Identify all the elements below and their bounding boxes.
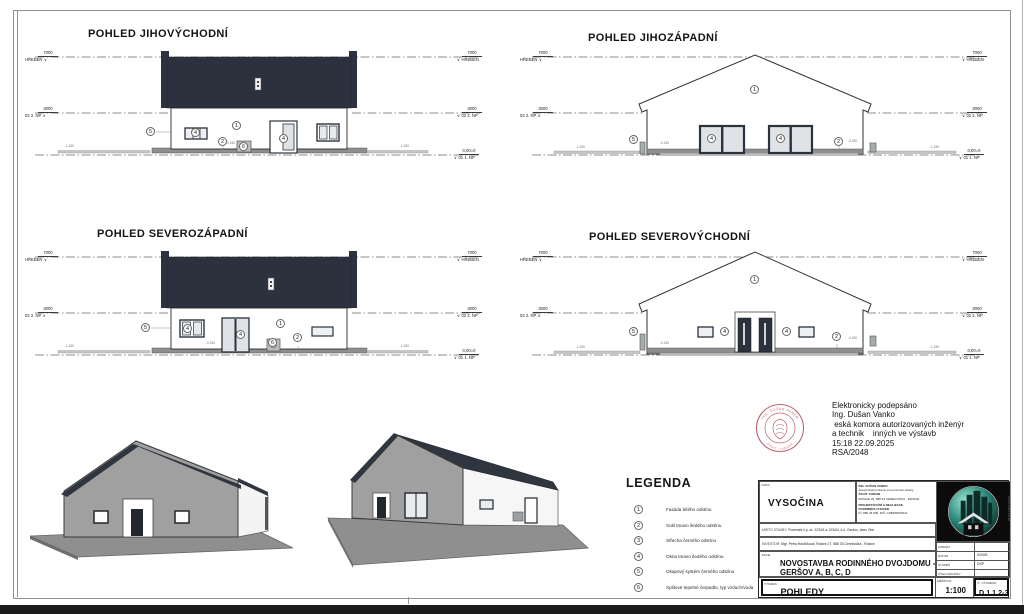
titleblock-project-cell: AKCE: NOVOSTAVBA RODINNÉHO DVOJDOMU - GE… xyxy=(759,551,936,578)
downspout xyxy=(265,497,268,530)
titleblock-site-cell: MÍSTO STAVBY: Pozemek č.p. st. 1234/1 a … xyxy=(759,523,936,538)
titleblock-drawing-cell: VÝKRES: POHLEDY xyxy=(759,577,936,597)
level-marker-floor2-left: 300002 2. NP∨ xyxy=(519,306,561,319)
annotation-circle: 6 xyxy=(268,338,277,347)
legend-item-number: 3 xyxy=(634,536,643,545)
gutter-drain xyxy=(870,336,876,346)
window-small-left xyxy=(698,327,713,337)
roof-vent xyxy=(268,278,274,290)
gutter-drain xyxy=(870,143,876,152)
elevation-view-southwest: POHLED JIHOZÁPADNÍ 7000HŘEBEN∨ 300002 2.… xyxy=(512,24,1012,184)
annotation-circle: 4 xyxy=(183,324,192,333)
level-marker-ridge-left: 7000HŘEBEN∨ xyxy=(519,250,561,263)
legend-item-number: 4 xyxy=(634,552,643,561)
view-title: POHLED SEVEROVÝCHODNÍ xyxy=(589,231,750,243)
meta-label-cell: DATUM xyxy=(937,552,975,561)
ground-tag: -1,150 xyxy=(65,144,74,148)
side-window xyxy=(480,500,493,509)
meta-label-cell: STUPEŇ xyxy=(937,561,975,570)
titleblock-engineer-cell: ING. DUŠAN VANKO Autorizovaný inženýr pr… xyxy=(856,481,937,523)
view-title: POHLED JIHOVÝCHODNÍ xyxy=(88,28,228,40)
window-wide xyxy=(312,327,333,336)
sheet-border-inner-left xyxy=(17,10,18,597)
window xyxy=(175,511,189,523)
annotation-circle: 4 xyxy=(236,330,245,339)
kraj-value: VYSOČINA xyxy=(768,498,824,509)
annotation-circle: 4 xyxy=(191,128,200,137)
window xyxy=(94,511,108,523)
ground-tag: -0,150 xyxy=(848,139,857,143)
roof xyxy=(161,51,357,108)
project-label: AKCE: xyxy=(762,553,771,557)
door xyxy=(131,509,143,536)
level-marker-floor2-left: 300002 2. NP∨ xyxy=(24,306,66,319)
annotation-circle: 4 xyxy=(776,134,785,143)
gable-door xyxy=(373,493,390,518)
annotation-circle: 4 xyxy=(707,134,716,143)
ground-tag: -1,150 xyxy=(400,144,409,148)
ground-tag: -0,150 xyxy=(660,141,669,145)
ground-tag: -1,150 xyxy=(400,344,409,348)
site-label: MÍSTO STAVBY: xyxy=(762,528,787,532)
legend-item-number: 2 xyxy=(634,521,643,530)
titleblock-investor-cell: INVESTOR: Mgr. Petra Havlíčková, Rosice … xyxy=(759,537,936,552)
annotation-circle: 4 xyxy=(782,327,791,336)
level-marker-floor2-right: 3000∨02 2. NP xyxy=(960,306,1002,319)
drawing-number: D.1.1.2-3 xyxy=(979,588,1009,597)
ground-tag: -0,150 xyxy=(848,336,857,340)
door-recess xyxy=(123,499,153,537)
annotation-circle: 2 xyxy=(832,332,841,341)
level-marker-floor2-right: 3000∨02 2. NP xyxy=(960,106,1002,119)
window-double xyxy=(317,124,339,141)
kraj-label: KRAJ: xyxy=(762,483,771,487)
drawing-label: VÝKRES: xyxy=(764,582,777,586)
electronic-signature: ING. DUŠAN VANKO ČKAIT - 1400339 Elektro… xyxy=(750,396,1014,472)
project-title: NOVOSTAVBA RODINNÉHO DVOJDOMU - GERŠOV A… xyxy=(780,559,935,578)
annotation-circle: 1 xyxy=(750,275,759,284)
meta-value-cell: DSP xyxy=(975,561,1011,570)
annotation-circle: 2 xyxy=(293,333,302,342)
downspout xyxy=(640,334,645,350)
walkway xyxy=(660,153,858,156)
walkway xyxy=(660,353,858,356)
legend-item-text: Sokl tmavo šedého odstínu xyxy=(666,523,721,528)
roof-vent xyxy=(255,78,261,90)
titleblock-number-cell: Č. VÝKRESU: D.1.1.2-3 xyxy=(974,577,1011,597)
elevation-view-northeast: POHLED SEVEROVÝCHODNÍ 7000HŘEBEN∨ 300002… xyxy=(512,224,1012,384)
level-marker-ridge-left: 7000HŘEBEN∨ xyxy=(24,50,66,63)
meta-label-cell: FORMÁT xyxy=(937,543,975,552)
legend-item-text: Okna tmavo šedého odstínu xyxy=(666,554,723,559)
scale-label: MĚŘÍTKO: xyxy=(937,579,952,583)
legend-item-text: Fasáda bílého odstínu xyxy=(666,507,711,512)
level-marker-floor2-right: 3000∨02 2. NP xyxy=(455,306,497,319)
scale-value: 1:100 xyxy=(946,586,966,595)
drawing-name: POHLEDY xyxy=(781,587,825,597)
legend-title: LEGENDA xyxy=(626,476,691,490)
annotation-circle: 6 xyxy=(239,142,248,151)
level-marker-ground-right: 0,00=0∨01 1. NP xyxy=(452,148,494,161)
stamp-emblem xyxy=(773,419,787,439)
annotation-circle: 1 xyxy=(276,319,285,328)
authorization-stamp: ING. DUŠAN VANKO ČKAIT - 1400339 xyxy=(754,402,806,454)
side-door xyxy=(525,498,537,523)
elevation-drawing-southwest xyxy=(512,24,1012,184)
level-marker-ridge-right: 7000∨HŘEBEN xyxy=(455,50,497,63)
signature-line: Ing. Dušan Vanko xyxy=(832,410,964,419)
annotation-circle: 1 xyxy=(750,85,759,94)
roof xyxy=(161,251,357,308)
ground-tag: -0,150 xyxy=(206,341,215,345)
legend-item-text: Střecha černého odstínu xyxy=(666,538,716,543)
elevation-view-southeast: POHLED JIHOVÝCHODNÍ 7000HŘEBEN∨ 300002 2… xyxy=(20,24,508,184)
entry-recess xyxy=(735,312,775,352)
annotation-circle: 4 xyxy=(720,327,729,336)
title-block: KRAJ: VYSOČINA ING. DUŠAN VANKO Autorizo… xyxy=(758,480,1009,598)
drawing-number-label: Č. VÝKRESU: xyxy=(978,581,998,585)
titleblock-meta-table: FORMÁT DATUM 9/2025 STUPEŇ DSP ČÍSLO ZAK… xyxy=(936,542,1011,578)
legend-item-number: 5 xyxy=(634,567,643,576)
signature-line: 15:18 22.09.2025 xyxy=(832,439,964,448)
level-marker-ridge-right: 7000∨HŘEBEN xyxy=(455,250,497,263)
site-value: Pozemek č.p. st. 1234/1 a 1234/4, k.ú. G… xyxy=(788,528,874,532)
ground-tag: -0,150 xyxy=(660,341,669,345)
elevation-drawing-northwest xyxy=(20,224,508,384)
annotation-circle: 5 xyxy=(629,327,638,336)
legend-item-text: Splitové tepelné čerpadlo, typ vzduch/vo… xyxy=(666,585,753,590)
annotation-circle: 4 xyxy=(279,134,288,143)
page-bottom-edge xyxy=(0,605,1024,614)
drawing-sheet: POHLED JIHOVÝCHODNÍ 7000HŘEBEN∨ 300002 2… xyxy=(0,0,1024,614)
signature-line: RSA/2048 xyxy=(832,448,964,457)
heat-pump-unit xyxy=(513,512,523,521)
ground-tag: -1,150 xyxy=(930,345,939,349)
level-marker-ridge-left: 7000HŘEBEN∨ xyxy=(519,50,561,63)
legend-item-number: 1 xyxy=(634,505,643,514)
annotation-circle: 5 xyxy=(146,127,155,136)
meta-value-cell: 9/2025 xyxy=(975,552,1011,561)
titleblock-region-cell: KRAJ: VYSOČINA xyxy=(759,481,856,523)
titleblock-scale-cell: MĚŘÍTKO: 1:100 xyxy=(936,577,975,597)
elevation-drawing-northeast xyxy=(512,224,1012,384)
investor-label: INVESTOR: xyxy=(762,542,780,546)
signature-line: Elektronicky podepsáno xyxy=(832,401,964,410)
fold-mark xyxy=(408,597,409,604)
render-3d-perspective-view xyxy=(318,400,608,590)
view-title: POHLED JIHOZÁPADNÍ xyxy=(588,32,718,44)
engineer-info: ING. DUŠAN VANKO Autorizovaný inženýr pr… xyxy=(859,484,920,515)
level-marker-ground-right: 0,00=0∨01 1. NP xyxy=(452,348,494,361)
investor-value: Mgr. Petra Havlíčková, Rosice 27, 588 33… xyxy=(781,542,874,546)
page-edge xyxy=(1022,0,1023,614)
side-wall xyxy=(238,481,268,537)
print-timestamp: 22.09.2025 15:18 xyxy=(1007,496,1011,521)
level-marker-ridge-right: 7000∨HŘEBEN xyxy=(960,50,1002,63)
level-marker-ground-right: 0,00=0∨01 1. NP xyxy=(957,148,999,161)
meta-value-cell xyxy=(975,543,1011,552)
level-marker-ground-right: 0,00=0∨01 1. NP xyxy=(957,348,999,361)
window-small-right xyxy=(799,327,814,337)
render-3d-gable-view xyxy=(25,425,305,590)
elevation-drawing-southeast xyxy=(20,24,508,184)
ground-tag: -1,150 xyxy=(576,145,585,149)
legend-item-number: 6 xyxy=(634,583,643,592)
signature-line: eská komora autorizovaných inženýr xyxy=(832,420,964,429)
level-marker-ridge-right: 7000∨HŘEBEN xyxy=(960,250,1002,263)
ground-tag: -1,150 xyxy=(576,345,585,349)
level-marker-ridge-left: 7000HŘEBEN∨ xyxy=(24,250,66,263)
level-marker-floor2-right: 3000∨02 2. NP xyxy=(455,106,497,119)
legend-item-text: Okapový systém černého odstínu xyxy=(666,569,734,574)
annotation-circle: 1 xyxy=(232,121,241,130)
annotation-circle: 5 xyxy=(141,323,150,332)
elevation-view-northwest: POHLED SEVEROZÁPADNÍ 7000HŘEBEN∨ 300002 … xyxy=(20,224,508,384)
ground-tag: -0,150 xyxy=(226,141,235,145)
drawing-name-box: VÝKRES: POHLEDY xyxy=(761,579,933,597)
annotation-circle: 2 xyxy=(834,137,843,146)
annotation-circle: 5 xyxy=(629,135,638,144)
signature-text: Elektronicky podepsáno Ing. Dušan Vanko … xyxy=(832,401,964,457)
titleblock-logo-cell xyxy=(936,481,1011,542)
view-title: POHLED SEVEROZÁPADNÍ xyxy=(97,228,248,240)
level-marker-floor2-left: 300002 2. NP∨ xyxy=(24,106,66,119)
downspout xyxy=(640,142,645,154)
ground-tag: -1,150 xyxy=(930,145,939,149)
company-logo xyxy=(937,482,1010,541)
gable-glass-door xyxy=(405,493,427,518)
level-marker-floor2-left: 300002 2. NP∨ xyxy=(519,106,561,119)
signature-line: a technik inných ve výstavb xyxy=(832,429,964,438)
ground-tag: -1,150 xyxy=(65,344,74,348)
drawing-number-box: Č. VÝKRESU: D.1.1.2-3 xyxy=(974,578,1009,596)
